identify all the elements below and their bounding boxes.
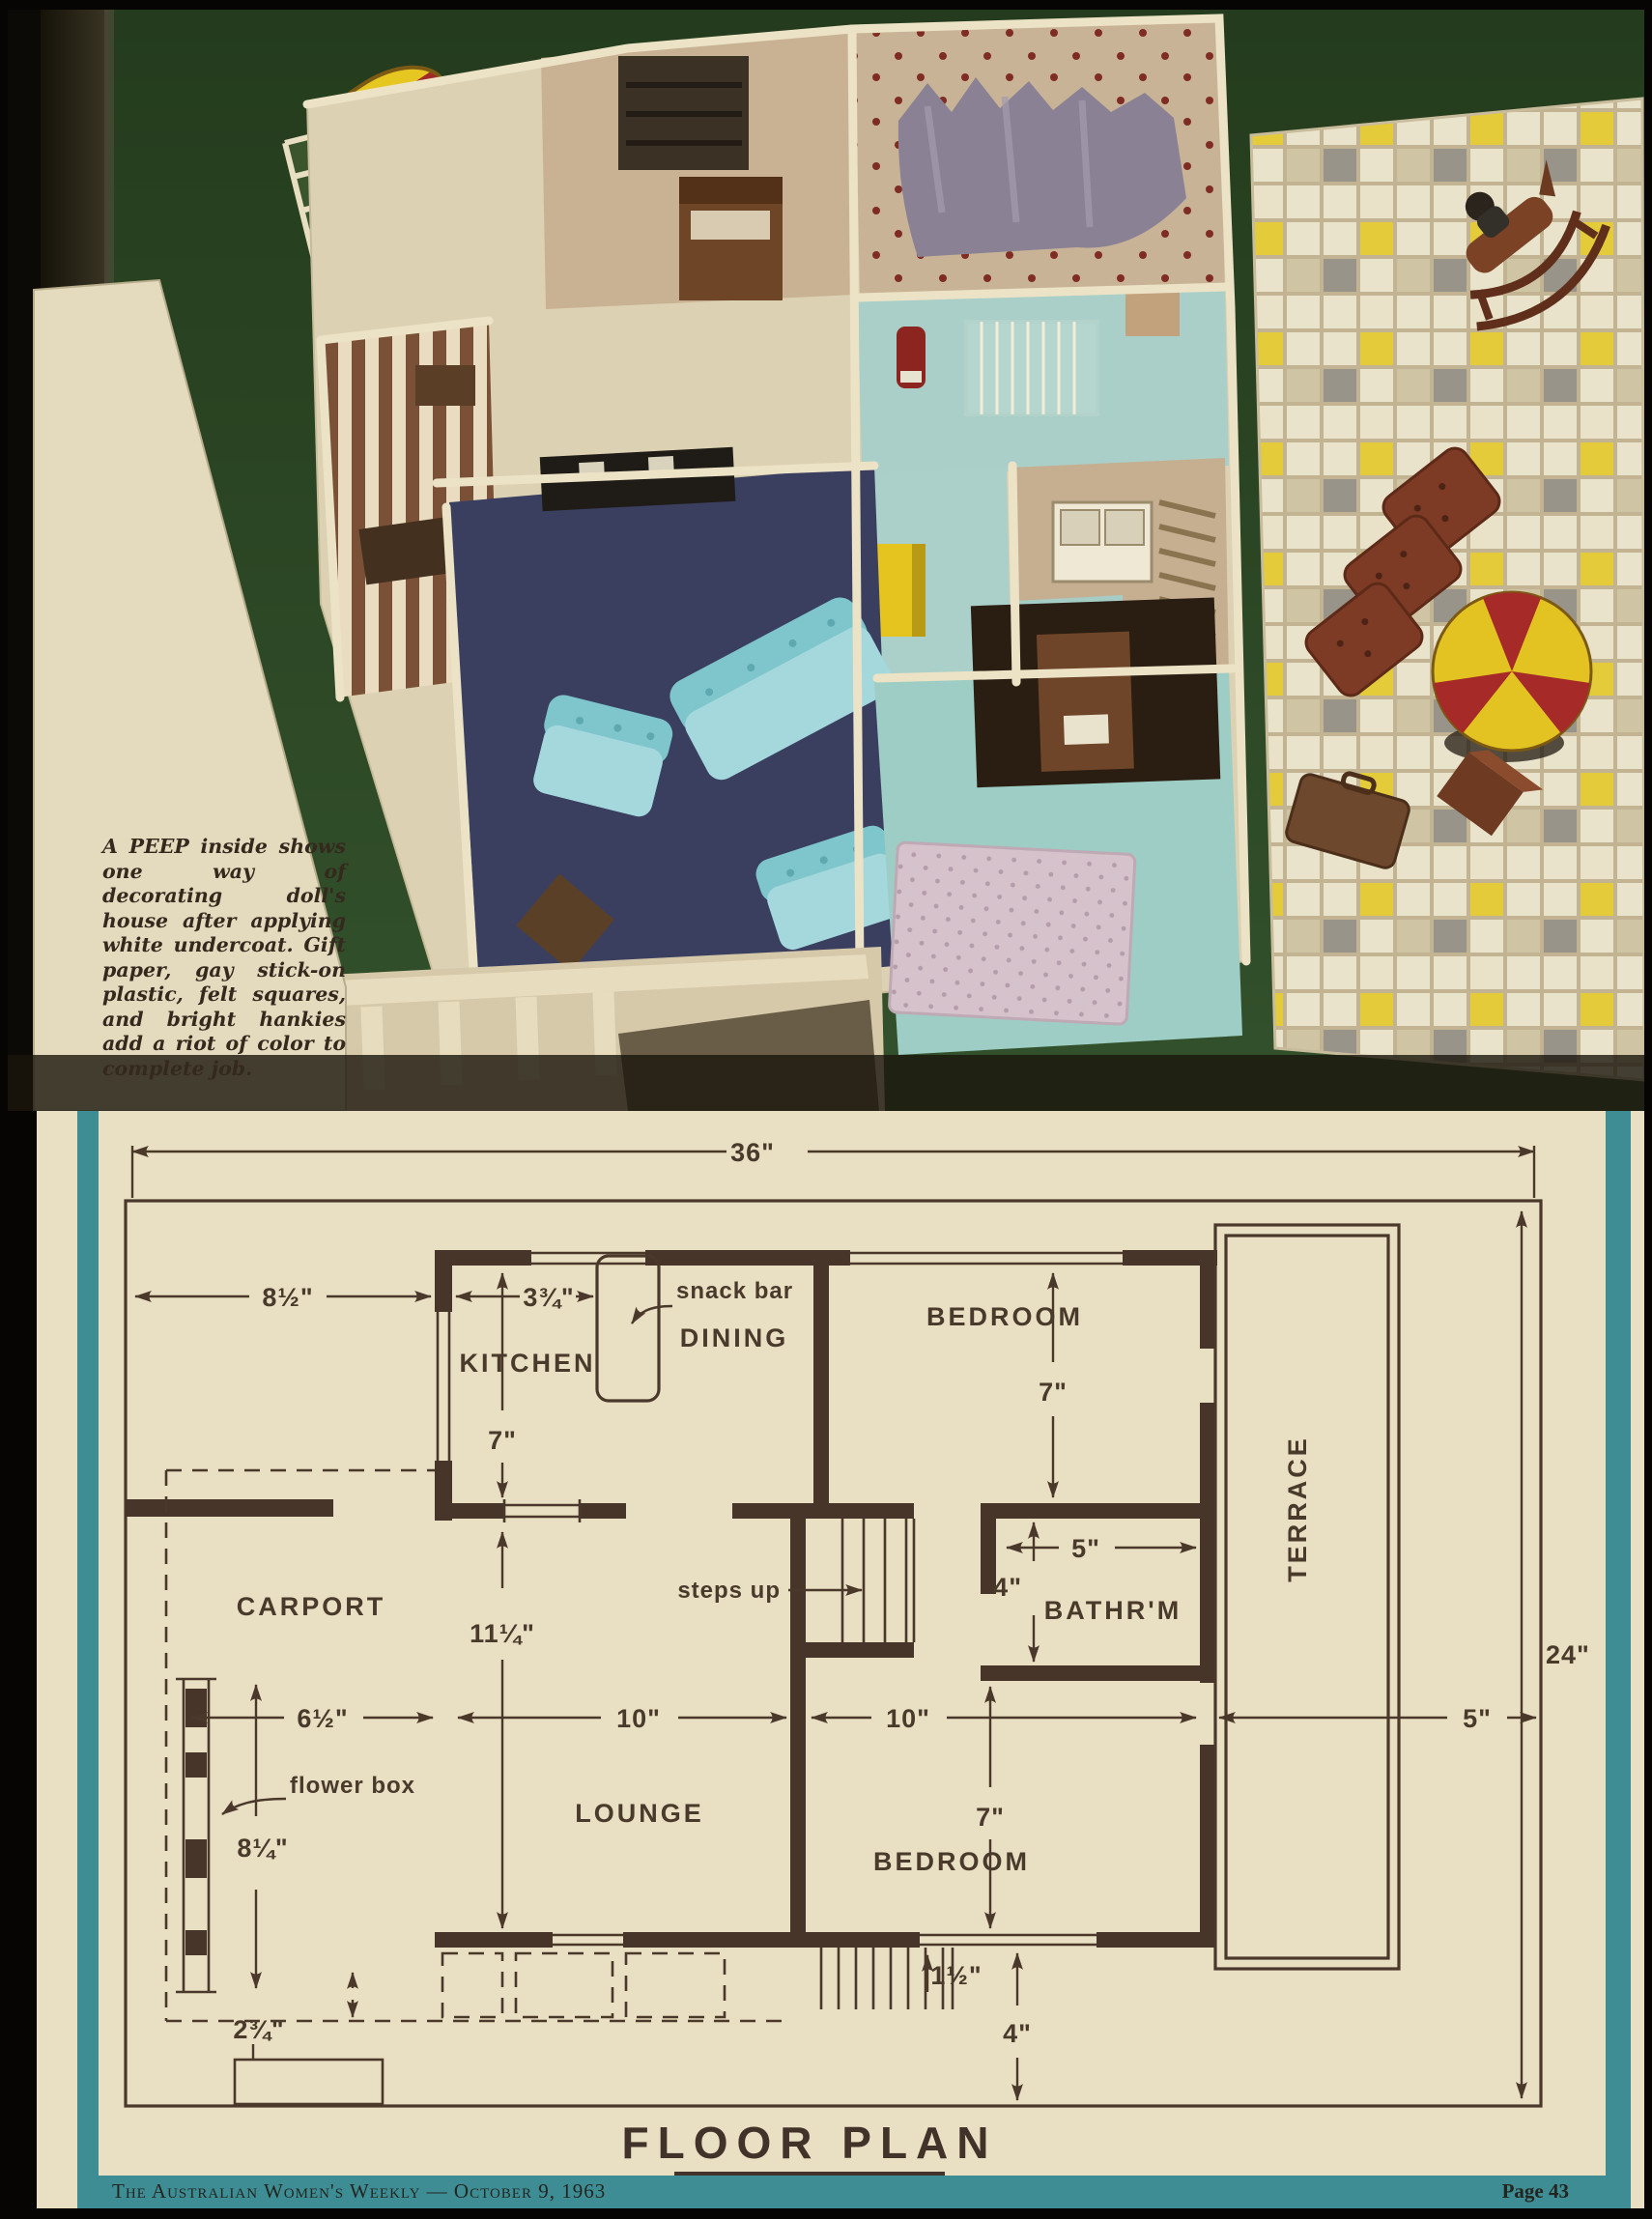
nursery — [855, 19, 1229, 475]
label-lounge: LOUNGE — [575, 1799, 704, 1828]
dim-setback: 4" — [1003, 2019, 1032, 2048]
callout-steps-up: steps up — [677, 1578, 781, 1604]
dollhouse-photo: A PEEP inside shows one way of decoratin… — [8, 10, 1644, 1111]
dim-overall-width: 36" — [730, 1138, 775, 1167]
terrace-outline — [1215, 1225, 1399, 1969]
dim-kitchen-depth: 7" — [488, 1426, 517, 1455]
label-bedroom-top: BEDROOM — [926, 1302, 1083, 1331]
dim-carport-width: 8½" — [262, 1283, 313, 1312]
toy-car — [897, 327, 926, 388]
fireplace-room — [541, 31, 855, 309]
label-bathroom: BATHR'M — [1044, 1596, 1182, 1625]
floor-plan-page: 36" 24" — [37, 1111, 1644, 2208]
terrace-tiles — [1251, 99, 1644, 1080]
crib — [966, 322, 1097, 414]
magazine-footer: The Australian Women's Weekly — October … — [112, 2177, 606, 2205]
side-table — [1125, 288, 1180, 336]
dim-terrace-width: 5" — [1463, 1704, 1492, 1733]
dollhouse — [307, 17, 1248, 1111]
dim-step: 1½" — [930, 1961, 982, 1990]
photo-caption: A PEEP inside shows one way of decoratin… — [102, 835, 346, 1081]
magazine-page: A PEEP inside shows one way of decoratin… — [0, 0, 1652, 2219]
mountain-mural — [898, 77, 1186, 257]
label-bedroom-bottom: BEDROOM — [873, 1847, 1030, 1876]
dim-kerb: 2¾" — [233, 2015, 284, 2044]
callout-flower-box: flower box — [290, 1773, 415, 1799]
dim-bath-depth: 4" — [993, 1573, 1022, 1602]
dim-bath-width: 5" — [1071, 1534, 1100, 1563]
plan-title: FLOOR PLAN — [622, 2118, 998, 2168]
label-terrace: TERRACE — [1283, 1436, 1312, 1582]
dim-bedroom-bot: 7" — [976, 1803, 1005, 1832]
mattress — [889, 842, 1135, 1025]
callout-snack-bar: snack bar — [676, 1278, 793, 1304]
dim-flower-box: 8¼" — [237, 1834, 288, 1863]
label-dining: DINING — [680, 1323, 789, 1352]
floor-plan-drawing: 36" 24" — [37, 1111, 1644, 2208]
dim-carport-inner: 6½" — [297, 1704, 348, 1733]
dim-bedroom-top: 7" — [1039, 1378, 1068, 1407]
label-kitchen: KITCHEN — [460, 1349, 596, 1378]
page-number: Page 43 — [1502, 2177, 1569, 2205]
label-carport: CARPORT — [237, 1592, 386, 1621]
snack-bar-counter — [597, 1256, 659, 1401]
dim-kitchen-width: 3¾" — [523, 1283, 574, 1312]
dim-lounge-width: 10" — [616, 1704, 661, 1733]
dim-overall-height: 24" — [1546, 1640, 1590, 1669]
wardrobe — [971, 598, 1220, 788]
lounge-room — [449, 447, 912, 1003]
dim-bedroom-width: 10" — [886, 1704, 930, 1733]
dim-hall-depth: 11¼" — [470, 1619, 535, 1648]
